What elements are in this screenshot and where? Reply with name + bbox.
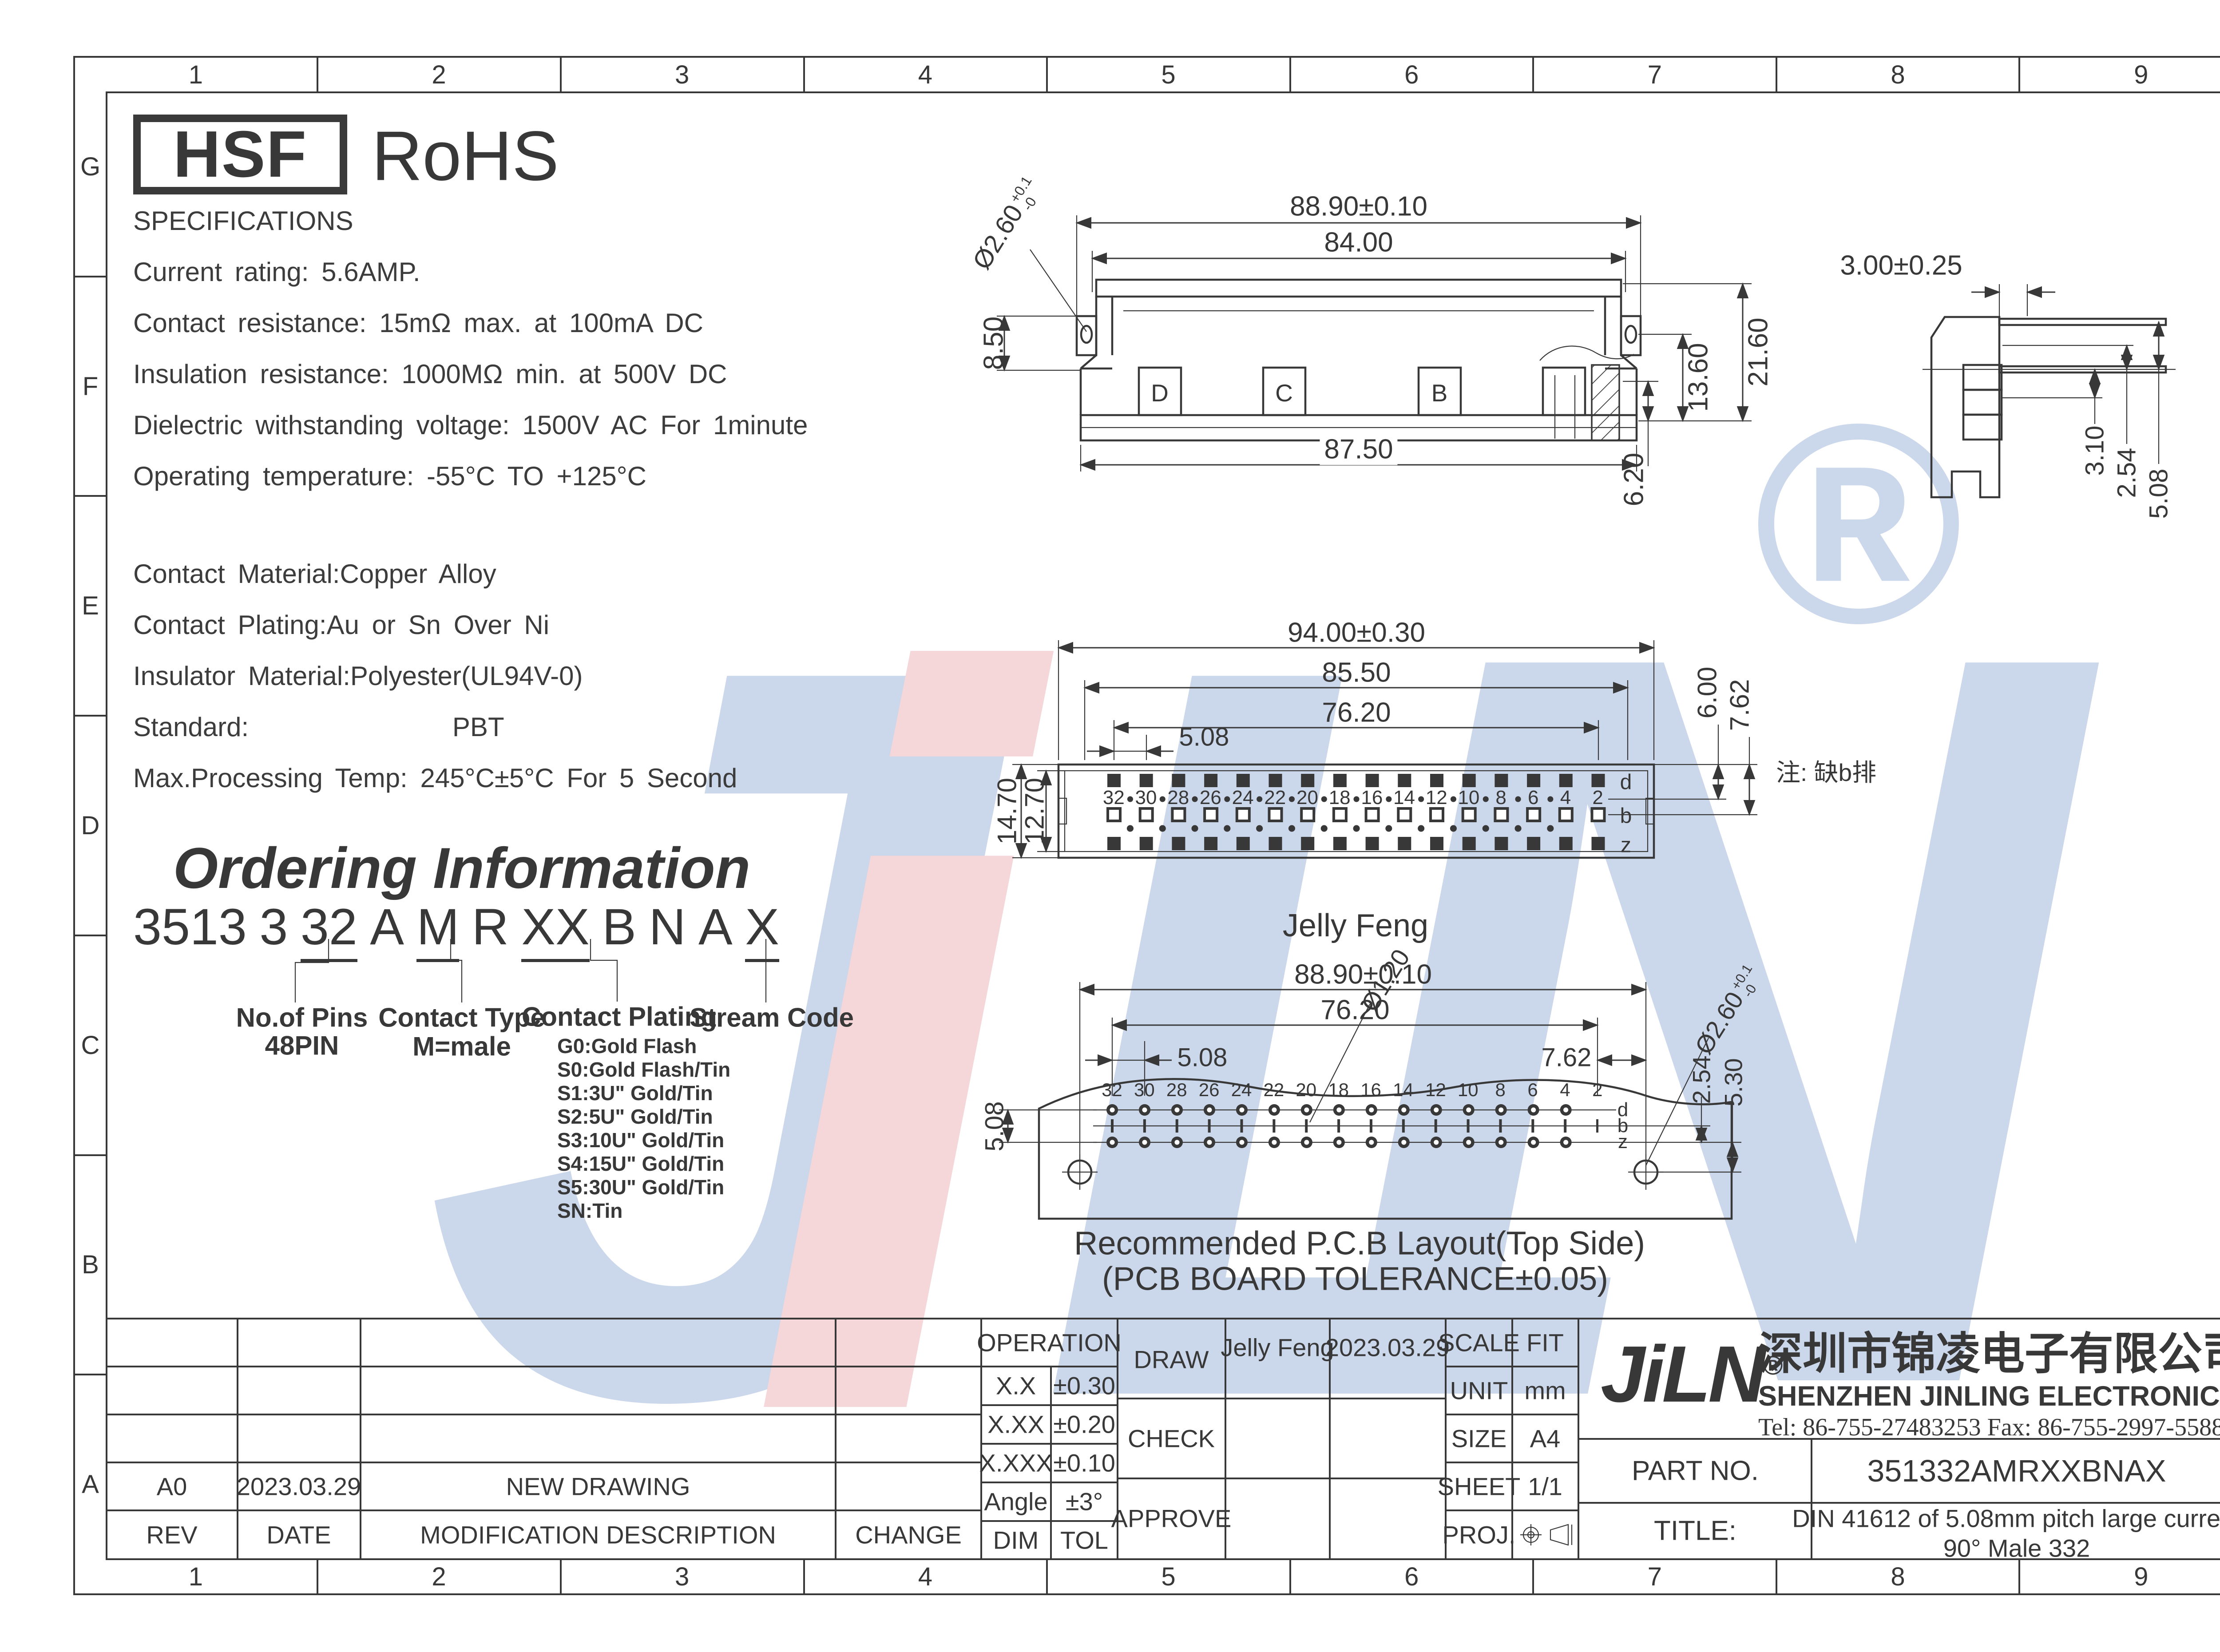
- pin-number: 30: [1128, 1080, 1161, 1100]
- code-token: 3513: [133, 898, 247, 962]
- tol-val-3: ±0.10: [1053, 1449, 1115, 1478]
- materials-block: Contact Material:Copper AlloyContact Pla…: [133, 548, 737, 804]
- plating-option: S3:10U" Gold/Tin: [557, 1129, 730, 1152]
- pcb-dim-pitch: 5.08: [1177, 1043, 1228, 1073]
- pin-number: 14: [1387, 1080, 1419, 1100]
- pin-number: 10: [1452, 1080, 1484, 1100]
- material-line: Contact Plating:Au or Sn Over Ni: [133, 599, 737, 650]
- side-dim-top: 3.00±0.25: [1840, 250, 1962, 281]
- dim-height-mid: 13.60: [1683, 343, 1714, 412]
- code-token-pins: 32: [301, 898, 357, 962]
- pcb-row-z: z: [1618, 1131, 1628, 1153]
- plating-label: Contact Plating: [522, 1002, 717, 1032]
- spec-line: Contact resistance: 15mΩ max. at 100mA D…: [133, 297, 808, 349]
- third-angle-projection-icon: [1520, 1524, 1572, 1545]
- face-dim-mid: 85.50: [1322, 657, 1391, 689]
- draw-label: DRAW: [1134, 1345, 1209, 1374]
- partno-label: PART NO.: [1632, 1455, 1759, 1487]
- frame-row-label: E: [74, 496, 107, 716]
- rev-header-rev: REV: [146, 1521, 197, 1549]
- company-name-cn: 深圳市锦凌电子有限公司: [1758, 1318, 2220, 1382]
- hsf-badge: HSF: [133, 115, 347, 194]
- title-value-line2: 90° Male 332: [1943, 1534, 2090, 1563]
- rev-row-date: 2023.03.29: [237, 1472, 361, 1501]
- pin-number: 8: [1485, 787, 1517, 808]
- scale-label: SCALE: [1438, 1328, 1520, 1357]
- contact-type-label: Contact Type: [378, 1002, 545, 1033]
- frame-row-label: A: [74, 1375, 107, 1594]
- pin-number: 26: [1193, 1080, 1225, 1100]
- frame-column-label: 2: [317, 57, 561, 92]
- material-line: Insulator Material:Polyester(UL94V-0): [133, 650, 737, 701]
- frame-rows-left: GFEDCBA: [74, 57, 107, 1594]
- plating-option: S1:3U" Gold/Tin: [557, 1082, 730, 1105]
- pin-number: 20: [1290, 1080, 1322, 1100]
- dim-height-total: 21.60: [1743, 317, 1774, 386]
- plating-option: S0:Gold Flash/Tin: [557, 1058, 730, 1082]
- pin-number: 14: [1388, 787, 1420, 808]
- pin-number: 28: [1161, 1080, 1193, 1100]
- side-dim-c: 5.08: [2144, 469, 2174, 519]
- pin-number: 16: [1355, 1080, 1387, 1100]
- unit-value: mm: [1524, 1376, 1566, 1405]
- pin-number: 30: [1130, 787, 1162, 808]
- face-dim-outer: 94.00±0.30: [1288, 617, 1425, 649]
- frame-column-label: 9: [2019, 1559, 2220, 1594]
- frame-row-label: B: [74, 1155, 107, 1375]
- frame-column-label: 7: [1533, 1559, 1776, 1594]
- code-token: B: [602, 898, 636, 962]
- pin-number: 20: [1291, 787, 1324, 808]
- spec-line: Insulation resistance: 1000MΩ min. at 50…: [133, 349, 808, 400]
- plating-option: S2:5U" Gold/Tin: [557, 1105, 730, 1129]
- unit-label: UNIT: [1450, 1376, 1508, 1405]
- rev-header-date: DATE: [266, 1521, 331, 1549]
- pin-number: 26: [1194, 787, 1227, 808]
- ordering-information-title: Ordering Information: [173, 835, 750, 901]
- code-token-stream: X: [745, 898, 779, 962]
- pcb-pin-numbers: 3230282624222018161412108642: [1096, 1080, 1614, 1100]
- side-dim-a: 3.10: [2080, 426, 2110, 476]
- face-note: 注: 缺b排: [1776, 753, 1876, 788]
- slot-label-c: C: [1275, 379, 1293, 407]
- frame-columns-top: 123456789: [74, 57, 2220, 92]
- frame-column-label: 1: [74, 57, 317, 92]
- pcb-dim-hole-offset: 5.30: [1719, 1058, 1748, 1107]
- frame-column-label: 9: [2019, 57, 2220, 92]
- spec-line: Current rating: 5.6AMP.: [133, 246, 808, 297]
- tol-val-1: ±0.30: [1053, 1371, 1115, 1400]
- scale-value: FIT: [1526, 1328, 1564, 1357]
- pin-number: 12: [1419, 1080, 1452, 1100]
- frame-column-label: 1: [74, 1559, 317, 1594]
- partno-value: 351332AMRXXBNAX: [1867, 1453, 2166, 1489]
- slot-label-b: B: [1431, 379, 1448, 407]
- rev-row-desc: NEW DRAWING: [506, 1472, 690, 1501]
- ordering-code: 3513 3 32 A M R XX B N A X: [133, 898, 779, 962]
- face-row-d: d: [1620, 770, 1632, 795]
- face-dim-height2: 12.70: [1019, 778, 1050, 844]
- rev-header-desc: MODIFICATION DESCRIPTION: [420, 1521, 776, 1549]
- title-label: TITLE:: [1654, 1515, 1736, 1547]
- plating-option: S4:15U" Gold/Tin: [557, 1152, 730, 1176]
- pin-number: 24: [1225, 1080, 1258, 1100]
- pin-number: 22: [1257, 1080, 1290, 1100]
- slot-label-d: D: [1151, 379, 1169, 407]
- company-tel-fax: Tel: 86-755-27483253 Fax: 86-755-2997-55…: [1758, 1413, 2220, 1442]
- size-value: A4: [1530, 1424, 1561, 1453]
- spec-line: Operating temperature: -55°C TO +125°C: [133, 451, 808, 502]
- code-token: A: [698, 898, 733, 962]
- pin-number: 32: [1098, 787, 1130, 808]
- material-line: Standard: PBT: [133, 701, 737, 753]
- plating-option: SN:Tin: [557, 1199, 730, 1223]
- face-row-z: z: [1621, 833, 1631, 858]
- frame-column-label: 7: [1533, 57, 1776, 92]
- pin-number: 6: [1517, 787, 1550, 808]
- pins-label: No.of Pins: [236, 1002, 368, 1033]
- code-token-contact-type: M: [416, 898, 459, 962]
- frame-column-label: 4: [804, 57, 1047, 92]
- frame-column-label: 5: [1047, 57, 1290, 92]
- approve-label: APPROVE: [1111, 1504, 1232, 1533]
- pin-number: 6: [1517, 1080, 1549, 1100]
- plating-option: S5:30U" Gold/Tin: [557, 1176, 730, 1199]
- frame-column-label: 8: [1776, 1559, 2020, 1594]
- dim-left: 8.50: [978, 317, 1010, 370]
- pin-number: 16: [1356, 787, 1388, 808]
- pin-number: 28: [1162, 787, 1194, 808]
- code-token: A: [370, 898, 404, 962]
- tol-dim-4: Angle: [984, 1487, 1047, 1516]
- tol-val-4: ±3°: [1066, 1487, 1103, 1516]
- face-pin-numbers: 3230282624222018161412108642: [1098, 787, 1614, 808]
- pin-number: 22: [1259, 787, 1291, 808]
- frame-column-label: 2: [317, 1559, 561, 1594]
- spec-line: Dielectric withstanding voltage: 1500V A…: [133, 400, 808, 451]
- contact-type-value: M=male: [412, 1031, 511, 1062]
- frame-column-label: 6: [1290, 1559, 1533, 1594]
- pin-number: 12: [1420, 787, 1453, 808]
- frame-row-label: C: [74, 935, 107, 1155]
- pcb-dim-right: 7.62: [1542, 1043, 1592, 1073]
- specifications-block: SPECIFICATIONSCurrent rating: 5.6AMP.Con…: [133, 195, 808, 502]
- company-name-en: SHENZHEN JINLING ELECTRONICS CO.,LTD: [1758, 1380, 2220, 1412]
- dim-width-outer: 88.90±0.10: [1290, 191, 1427, 222]
- tol-dim-2: X.XX: [987, 1410, 1044, 1439]
- dim-width-base: 87.50: [1320, 434, 1397, 465]
- dim-height-base: 6.20: [1618, 453, 1650, 507]
- sheet-value: 1/1: [1528, 1472, 1562, 1501]
- material-line: Contact Material:Copper Alloy: [133, 548, 737, 599]
- rev-row-rev: A0: [157, 1472, 187, 1501]
- plating-options-list: G0:Gold FlashS0:Gold Flash/TinS1:3U" Gol…: [557, 1034, 730, 1223]
- pcb-dim-row-pitch: 2.54: [1687, 1056, 1716, 1104]
- code-token: 3: [259, 898, 288, 962]
- frame-column-label: 3: [560, 1559, 804, 1594]
- title-value-line1: DIN 41612 of 5.08mm pitch large current: [1792, 1504, 2220, 1533]
- pin-number: 4: [1550, 787, 1582, 808]
- operation-header: OPERATION: [977, 1328, 1122, 1357]
- material-line: Max.Processing Temp: 245°C±5°C For 5 Sec…: [133, 753, 737, 804]
- draw-name: Jelly Feng: [1221, 1333, 1334, 1362]
- rev-header-change: CHANGE: [855, 1521, 962, 1549]
- pin-number: 10: [1453, 787, 1485, 808]
- pin-number: 4: [1549, 1080, 1581, 1100]
- tol-val-5: TOL: [1060, 1526, 1108, 1555]
- spec-line: SPECIFICATIONS: [133, 195, 808, 246]
- code-token: N: [649, 898, 686, 962]
- face-dim-right2: 7.62: [1724, 679, 1755, 731]
- side-dim-b: 2.54: [2112, 448, 2142, 498]
- tol-val-2: ±0.20: [1053, 1410, 1115, 1439]
- frame-column-label: 3: [560, 57, 804, 92]
- face-author: Jelly Feng: [1283, 907, 1428, 944]
- dim-width-inner: 84.00: [1324, 227, 1393, 258]
- pin-number: 2: [1582, 787, 1614, 808]
- face-dim-pitch: 5.08: [1179, 722, 1229, 752]
- pin-number: 18: [1324, 787, 1356, 808]
- pin-number: 24: [1227, 787, 1259, 808]
- pin-number: 2: [1581, 1080, 1613, 1100]
- pcb-caption-line2: (PCB BOARD TOLERANCE±0.05): [1102, 1260, 1608, 1298]
- stream-code-label: Stream Code: [690, 1002, 854, 1033]
- frame-columns-bottom: 123456789: [74, 1559, 2220, 1594]
- tol-dim-1: X.X: [996, 1371, 1036, 1400]
- size-label: SIZE: [1451, 1424, 1506, 1453]
- check-label: CHECK: [1128, 1424, 1215, 1453]
- draw-date: 2023.03.29: [1325, 1333, 1450, 1362]
- pin-number: 32: [1096, 1080, 1128, 1100]
- frame-row-label: F: [74, 277, 107, 496]
- face-dim-right1: 6.00: [1692, 667, 1723, 719]
- frame-column-label: 5: [1047, 1559, 1290, 1594]
- proj-label: PROJ.: [1443, 1521, 1516, 1549]
- code-token-plating: XX: [521, 898, 589, 962]
- face-row-b: b: [1620, 804, 1632, 828]
- code-token: R: [472, 898, 509, 962]
- tol-dim-3: X.XXX: [979, 1449, 1053, 1478]
- frame-row-label: G: [74, 57, 107, 277]
- frame-column-label: 6: [1290, 57, 1533, 92]
- jiln-logo: JiLN®: [1601, 1328, 1783, 1420]
- plating-option: G0:Gold Flash: [557, 1034, 730, 1058]
- pcb-caption-line1: Recommended P.C.B Layout(Top Side): [1074, 1224, 1645, 1262]
- rohs-badge: RoHS: [372, 116, 559, 197]
- face-dim-height1: 14.70: [992, 778, 1023, 844]
- sheet-label: SHEET: [1438, 1472, 1521, 1501]
- frame-row-label: D: [74, 716, 107, 935]
- frame-column-label: 8: [1776, 57, 2020, 92]
- frame-column-label: 4: [804, 1559, 1047, 1594]
- face-dim-pins: 76.20: [1322, 697, 1391, 729]
- pcb-dim-left: 5.08: [980, 1101, 1010, 1152]
- pins-value: 48PIN: [265, 1030, 339, 1061]
- tol-dim-5: DIM: [993, 1526, 1039, 1555]
- pin-number: 18: [1322, 1080, 1355, 1100]
- pin-number: 8: [1484, 1080, 1517, 1100]
